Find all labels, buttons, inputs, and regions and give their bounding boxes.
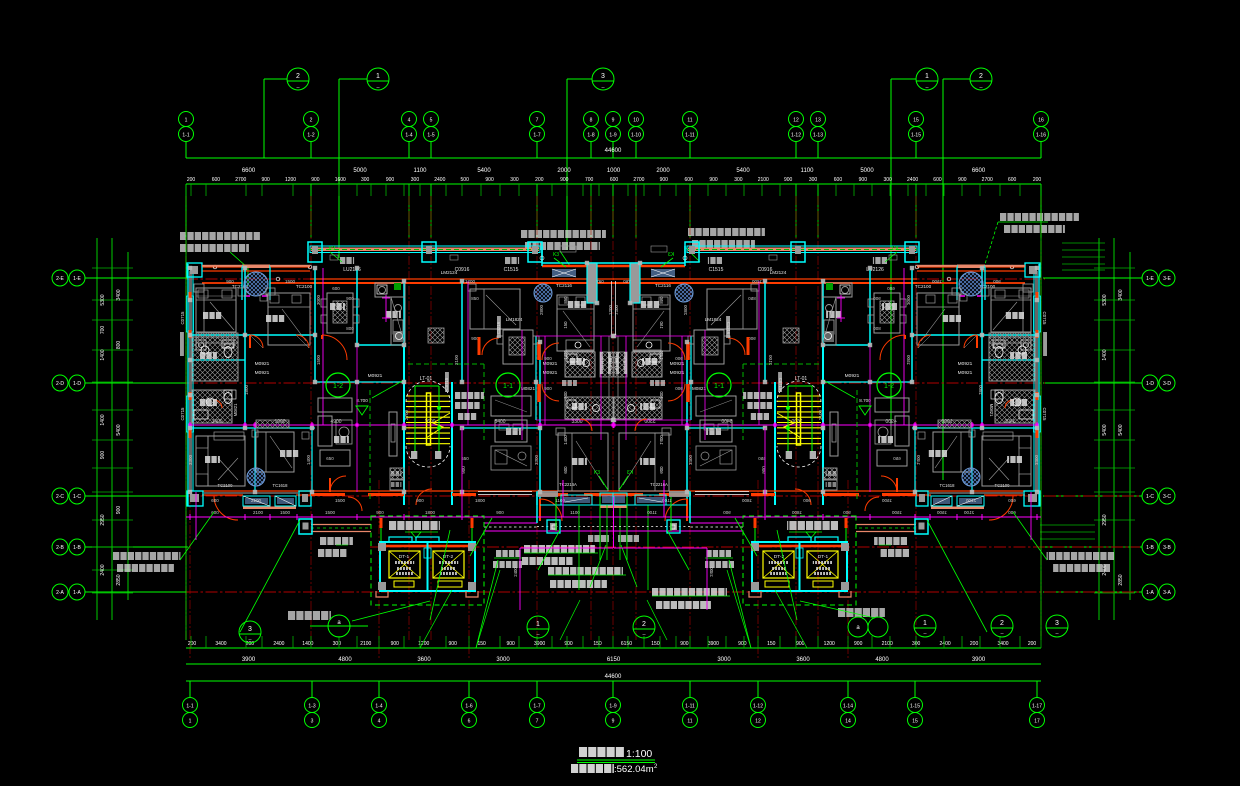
svg-text:150: 150 [477,641,486,647]
svg-text:--: -- [248,637,252,643]
svg-text:5400: 5400 [116,424,122,435]
svg-text:3: 3 [1055,620,1059,627]
svg-text:M0821: M0821 [692,386,706,391]
svg-text:DT-1: DT-1 [399,554,410,560]
svg-text:2: 2 [296,73,300,80]
svg-text:13: 13 [815,118,821,124]
svg-text:2400: 2400 [940,641,951,647]
svg-text:3900: 3900 [708,641,719,647]
svg-text:800: 800 [116,341,122,350]
svg-text:1-1: 1-1 [503,383,513,390]
svg-text:150: 150 [593,641,602,647]
svg-text:3-E: 3-E [1163,276,1171,282]
svg-text:1-5: 1-5 [427,133,434,139]
svg-text:1100: 1100 [414,168,428,174]
svg-text:300: 300 [884,177,893,183]
svg-text:600: 600 [684,177,693,183]
svg-text:LT-01: LT-01 [420,376,433,382]
svg-text:1000: 1000 [607,168,621,174]
svg-text:1: 1 [925,73,929,80]
svg-text:C0715: C0715 [1042,312,1047,325]
svg-text:300: 300 [809,177,818,183]
svg-text:2400: 2400 [273,641,284,647]
svg-text:200: 200 [188,641,197,647]
svg-text:600: 600 [933,177,942,183]
svg-text:300: 300 [333,641,342,647]
svg-text:--: -- [923,631,927,637]
svg-text:2-B: 2-B [56,545,64,551]
svg-text:--: -- [925,85,929,91]
svg-text:12: 12 [793,118,799,124]
svg-text:5300: 5300 [100,294,106,305]
svg-text:1-D: 1-D [73,381,81,387]
svg-text:1400: 1400 [302,641,313,647]
svg-text:--: -- [642,632,646,638]
svg-text:2850: 2850 [1118,574,1124,585]
svg-text:900: 900 [854,641,863,647]
svg-text:900: 900 [660,177,669,183]
svg-text:300: 300 [734,177,743,183]
svg-text:M0921: M0921 [958,361,973,367]
svg-text:1: 1 [185,118,188,124]
svg-text:1-12: 1-12 [791,133,801,139]
svg-text:1-8: 1-8 [587,133,594,139]
svg-text:600: 600 [834,177,843,183]
svg-text:LM2124: LM2124 [441,270,458,275]
svg-text:1-2: 1-2 [307,133,314,139]
svg-text:600: 600 [212,177,221,183]
svg-text:LM2124: LM2124 [770,270,787,275]
svg-text:17: 17 [1034,719,1040,725]
svg-text:3400: 3400 [116,289,122,300]
svg-text:1400: 1400 [100,349,106,360]
svg-text:1-9: 1-9 [609,133,616,139]
svg-text:4: 4 [408,118,411,124]
svg-text:3600: 3600 [417,657,431,663]
svg-text:--: -- [536,632,540,638]
svg-text:M0921: M0921 [255,370,270,376]
svg-text:15: 15 [912,719,918,725]
svg-text:6600: 6600 [972,168,986,174]
svg-text:M0921: M0921 [845,373,860,379]
svg-text:1-2: 1-2 [884,383,894,390]
svg-text:5400: 5400 [477,168,491,174]
svg-text:2700: 2700 [235,177,246,183]
svg-text:2700: 2700 [982,177,993,183]
svg-text:9: 9 [612,719,615,725]
svg-text:6600: 6600 [242,168,256,174]
svg-text:3-D: 3-D [1163,381,1171,387]
svg-text:1-B: 1-B [73,545,81,551]
svg-text:4800: 4800 [338,657,352,663]
svg-text:15: 15 [913,118,919,124]
svg-text:600: 600 [1008,177,1017,183]
svg-text:44600: 44600 [605,148,622,154]
svg-text:1-15: 1-15 [910,704,920,710]
svg-text:1-7: 1-7 [533,704,540,710]
svg-text:--: -- [296,85,300,91]
svg-text:C0715: C0715 [1042,408,1047,421]
svg-text:1-4: 1-4 [405,133,412,139]
svg-text:900: 900 [680,641,689,647]
svg-text:2: 2 [1000,620,1004,627]
svg-text:3: 3 [601,73,605,80]
svg-text:7: 7 [536,719,539,725]
svg-text:3900: 3900 [534,641,545,647]
svg-text:900: 900 [506,641,515,647]
svg-text:5000: 5000 [860,168,874,174]
svg-text:TC2100: TC2100 [296,284,313,289]
svg-text:1-7: 1-7 [533,133,540,139]
svg-text:1-13: 1-13 [813,133,823,139]
svg-text:5400: 5400 [736,168,750,174]
svg-text:2-C: 2-C [56,494,64,500]
svg-text:3400: 3400 [1118,289,1124,300]
svg-text:3: 3 [311,719,314,725]
svg-text:5400: 5400 [1102,424,1108,435]
svg-text:1-11: 1-11 [685,704,695,710]
svg-text:8.700: 8.700 [356,398,368,403]
svg-text:3: 3 [248,626,252,633]
svg-text:900: 900 [485,177,494,183]
svg-text:1-1: 1-1 [186,704,193,710]
svg-text:4800: 4800 [875,657,889,663]
svg-text::562.04m: :562.04m [614,764,654,775]
svg-text:2950: 2950 [1102,514,1108,525]
svg-text:44600: 44600 [605,674,622,680]
svg-text:M0921: M0921 [958,370,973,376]
svg-text:14: 14 [845,719,851,725]
svg-text:900: 900 [116,506,122,515]
svg-text:300: 300 [411,177,420,183]
svg-text:2100: 2100 [882,641,893,647]
svg-text:3400: 3400 [997,641,1008,647]
svg-text:C1515: C1515 [504,267,519,273]
svg-text:M0921: M0921 [368,373,383,379]
svg-text:TC2216A: TC2216A [650,482,668,487]
svg-text:1-A: 1-A [73,590,81,596]
svg-text:TC1618: TC1618 [273,483,289,488]
svg-text:TC2216A: TC2216A [559,482,577,487]
svg-text:1-D: 1-D [1146,381,1154,387]
svg-text:--: -- [601,85,605,91]
svg-text:500: 500 [461,177,470,183]
svg-text:--: -- [376,85,380,91]
svg-text:1: 1 [536,621,540,628]
svg-text:DT-1: DT-1 [818,554,829,560]
svg-text:300: 300 [361,177,370,183]
svg-text:900: 900 [449,641,458,647]
svg-text:1: 1 [189,719,192,725]
svg-text:5000: 5000 [353,168,367,174]
svg-text:--: -- [1055,631,1059,637]
svg-text:3400: 3400 [215,641,226,647]
svg-text:1-12: 1-12 [753,704,763,710]
svg-text:900: 900 [311,177,320,183]
svg-text:1-2: 1-2 [333,383,343,390]
svg-text:150: 150 [767,641,776,647]
svg-text:900: 900 [738,641,747,647]
svg-text:150: 150 [651,641,660,647]
svg-text:1-3: 1-3 [308,704,315,710]
svg-text:900: 900 [784,177,793,183]
svg-text:1-11: 1-11 [685,133,695,139]
svg-text:6150: 6150 [607,657,621,663]
svg-text:9: 9 [612,118,615,124]
svg-text:8.700: 8.700 [859,398,871,403]
svg-text:200: 200 [1033,177,1042,183]
svg-text:2-E: 2-E [56,276,64,282]
svg-text:1-B: 1-B [1146,545,1154,551]
svg-text:900: 900 [391,641,400,647]
svg-text:C0715: C0715 [180,407,185,420]
svg-text:11: 11 [687,719,692,725]
svg-text:300: 300 [510,177,519,183]
svg-text:16: 16 [1038,118,1044,124]
svg-text:11: 11 [687,118,692,124]
svg-text:2400: 2400 [100,564,106,575]
svg-text:8: 8 [590,118,593,124]
svg-text:200: 200 [970,641,979,647]
svg-text:2: 2 [642,621,646,628]
svg-text:2100: 2100 [758,177,769,183]
svg-text:3600: 3600 [796,657,810,663]
svg-text:900: 900 [560,177,569,183]
svg-text:200: 200 [535,177,544,183]
svg-text:1-E: 1-E [73,276,81,282]
svg-text:M0921: M0921 [670,370,685,376]
svg-text:--: -- [979,85,983,91]
svg-text:M0821: M0821 [989,404,994,417]
svg-text:3000: 3000 [496,657,510,663]
svg-text:1-1: 1-1 [182,133,189,139]
svg-text:1200: 1200 [285,177,296,183]
svg-text:TC2100: TC2100 [915,284,932,289]
svg-text:4: 4 [378,719,381,725]
svg-text:M0921: M0921 [670,361,685,367]
svg-text:M0921: M0921 [255,361,270,367]
svg-text:--: -- [1000,631,1004,637]
svg-text:2-D: 2-D [56,381,64,387]
svg-text:2: 2 [310,118,313,124]
svg-text:1600: 1600 [335,177,346,183]
svg-text:2100: 2100 [360,641,371,647]
svg-text:C0715: C0715 [180,311,185,324]
svg-text:5300: 5300 [1102,294,1108,305]
svg-text:1-E: 1-E [1146,276,1154,282]
svg-text:900: 900 [958,177,967,183]
svg-text:1-6: 1-6 [465,704,472,710]
svg-text:1-4: 1-4 [375,704,382,710]
svg-text:900: 900 [386,177,395,183]
svg-text:900: 900 [709,177,718,183]
svg-text:2700: 2700 [633,177,644,183]
svg-text:2400: 2400 [907,177,918,183]
svg-text:3900: 3900 [972,657,986,663]
svg-text:900: 900 [859,177,868,183]
svg-text:7: 7 [536,118,539,124]
svg-text:1-1: 1-1 [714,383,724,390]
svg-text:2400: 2400 [434,177,445,183]
svg-text:900: 900 [261,177,270,183]
svg-text:1-15: 1-15 [911,133,921,139]
svg-text:C1515: C1515 [709,267,724,273]
svg-text:200: 200 [1028,641,1037,647]
svg-text:5: 5 [430,118,433,124]
svg-text:700: 700 [100,326,106,335]
svg-text:3000: 3000 [717,657,731,663]
svg-text:1-A: 1-A [1146,590,1154,596]
svg-text:TC1618: TC1618 [940,483,956,488]
svg-text:1-C: 1-C [1146,494,1154,500]
svg-text:1-C: 1-C [73,494,81,500]
svg-text:1100: 1100 [801,168,815,174]
svg-text:1-17: 1-17 [1032,704,1042,710]
svg-text:1-9: 1-9 [609,704,616,710]
svg-text:2000: 2000 [656,168,670,174]
svg-text:6: 6 [468,719,471,725]
svg-text:1400: 1400 [100,414,106,425]
svg-text:700: 700 [585,177,594,183]
svg-text:M0821: M0821 [521,386,535,391]
svg-text:1:100: 1:100 [626,748,652,760]
svg-text:M0821: M0821 [233,403,238,416]
svg-text:1-14: 1-14 [843,704,853,710]
svg-text:2000: 2000 [557,168,571,174]
svg-text:1: 1 [376,73,380,80]
svg-text:2850: 2850 [116,574,122,585]
svg-text:3-A: 3-A [1163,590,1171,596]
svg-text:6150: 6150 [621,641,632,647]
svg-text:2: 2 [979,73,983,80]
svg-text:1-10: 1-10 [631,133,641,139]
svg-text:1200: 1200 [824,641,835,647]
svg-text:900: 900 [100,451,106,460]
svg-text:3900: 3900 [242,657,256,663]
svg-text:10: 10 [633,118,639,124]
svg-text:1-16: 1-16 [1036,133,1046,139]
svg-text:3-B: 3-B [1163,545,1171,551]
svg-text:1: 1 [923,620,927,627]
svg-text:5400: 5400 [1118,424,1124,435]
svg-text:12: 12 [755,719,761,725]
svg-text:3-C: 3-C [1163,494,1171,500]
svg-text:1400: 1400 [1102,349,1108,360]
svg-text:2-A: 2-A [56,590,64,596]
svg-text:900: 900 [564,641,573,647]
svg-text:600: 600 [610,177,619,183]
svg-text:2950: 2950 [100,514,106,525]
svg-text:200: 200 [187,177,196,183]
